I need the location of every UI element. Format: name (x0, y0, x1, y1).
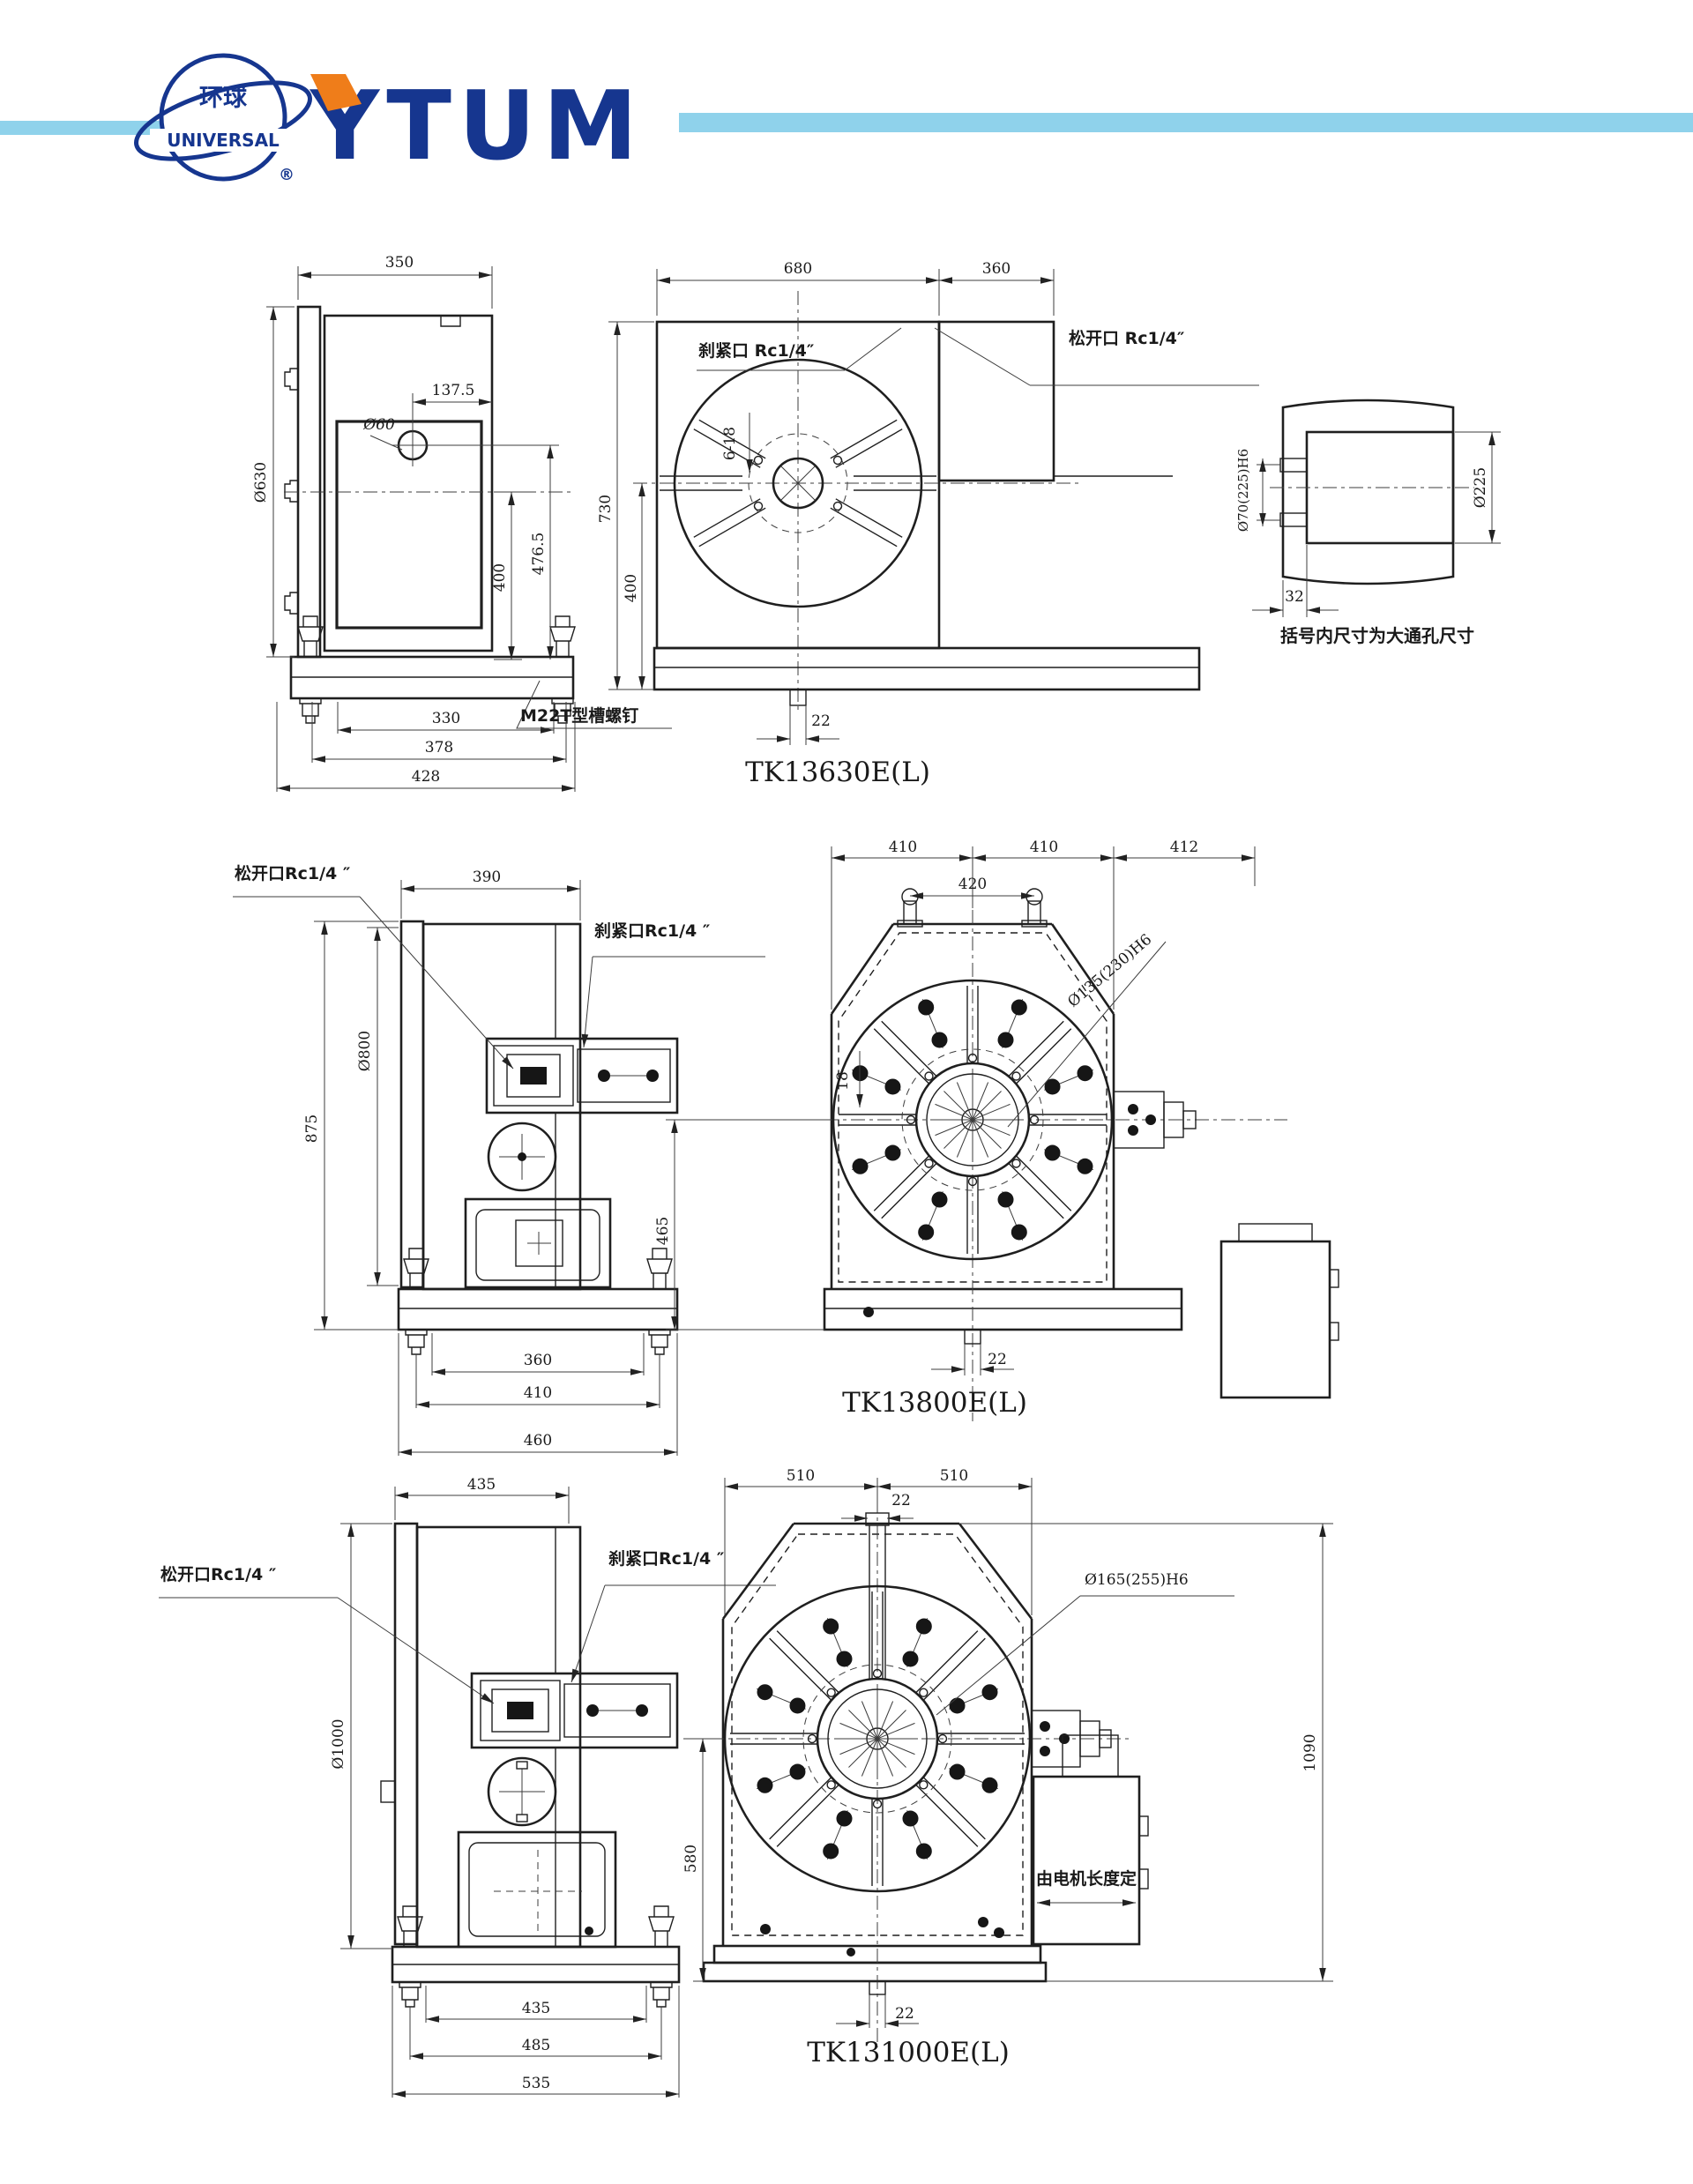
tk13630-title: TK13630E(L) (745, 757, 930, 788)
dim-510-a: 510 (787, 1467, 815, 1485)
tk131000-side-view (381, 1524, 679, 2007)
page-header: 环球 UNIVERSAL ® YTUM (0, 56, 1693, 184)
drawing-tk13630: 350 Ø630 137.5 Ø60 400 476.5 330 378 428 (252, 254, 1501, 792)
logo-chinese-name: 环球 (199, 85, 248, 112)
dim-330: 330 (432, 710, 460, 727)
dim-360: 360 (982, 260, 1011, 278)
tk131000-front-view (683, 1499, 1148, 2047)
tk13800-front-view (666, 889, 1339, 1421)
dim-390: 390 (473, 868, 501, 886)
note-bracket-dims: 括号内尺寸为大通孔尺寸 (1280, 625, 1474, 646)
tk13630-shaft-detail: Ø70(225)H6 Ø225 32 括号内尺寸为大通孔尺寸 (1235, 400, 1501, 646)
dim-485: 485 (522, 2037, 550, 2054)
tk13630-front-dimensions: 680 360 730 400 刹紧口 Rc1/4″ 松开口 Rc1/4″ 6-… (597, 260, 1259, 745)
dim-428: 428 (412, 768, 440, 786)
dim-137-5: 137.5 (432, 382, 475, 399)
tk13800-side-view (399, 921, 677, 1354)
logo-english-name: UNIVERSAL (167, 130, 280, 151)
dim-bore-135-230: Ø135(230)H6 (1064, 931, 1155, 1011)
brand-text: YTUM (309, 71, 645, 182)
dim-410-b: 410 (1030, 839, 1058, 856)
tk13800-side-dimensions: 390 松开口Rc1/4 ″ 刹紧口Rc1/4 ″ 875 Ø800 360 4… (233, 863, 765, 1456)
dim-225: Ø225 (1472, 467, 1489, 508)
dim-680: 680 (784, 260, 812, 278)
dim-350: 350 (385, 254, 414, 272)
universal-globe-logo: 环球 UNIVERSAL ® (129, 56, 318, 184)
dim-1090: 1090 (1301, 1733, 1319, 1771)
tk131000-side-dimensions: 435 松开口Rc1/4 ″ 刹紧口Rc1/4 ″ Ø1000 435 485 … (159, 1476, 776, 2098)
logo-registered-mark: ® (279, 166, 295, 184)
dim-32: 32 (1285, 588, 1304, 606)
dim-key-22-top: 22 (891, 1492, 911, 1509)
dim-key-22-3: 22 (895, 2005, 914, 2023)
dim-6-18: 6-18 (721, 427, 739, 460)
label-clamp-port-2: 刹紧口Rc1/4 ″ (594, 921, 711, 941)
dim-435-bottom: 435 (522, 2000, 550, 2017)
dim-410-a: 410 (889, 839, 917, 856)
dim-dia800: Ø800 (356, 1031, 374, 1071)
drawing-tk131000: 435 松开口Rc1/4 ″ 刹紧口Rc1/4 ″ Ø1000 435 485 … (159, 1467, 1333, 2098)
dim-730: 730 (597, 495, 615, 523)
dim-dia630: Ø630 (252, 462, 270, 503)
tk131000-worm-shaft-stub (1032, 1711, 1111, 1767)
dim-key-22-2: 22 (988, 1351, 1007, 1368)
callout-tslot-screw: M22T型槽螺钉 (520, 705, 638, 726)
tk131000-front-dimensions: 510 510 22 Ø165(255)H6 580 1090 由电机长度定 2… (682, 1467, 1333, 2028)
dim-465: 465 (654, 1217, 672, 1245)
label-clamp-port-3: 刹紧口Rc1/4 ″ (608, 1549, 725, 1569)
dim-535: 535 (522, 2075, 550, 2092)
dim-360-2: 360 (524, 1352, 552, 1369)
header-bar-right (679, 113, 1693, 132)
dim-420: 420 (958, 876, 987, 893)
dim-400-side: 400 (491, 563, 509, 592)
dim-875: 875 (303, 1114, 321, 1143)
label-release-port-3: 松开口Rc1/4 ″ (160, 1564, 277, 1584)
tk13800-front-dimensions: 410 410 412 420 Ø135(230)H6 18 465 22 (654, 839, 1255, 1375)
dim-435-top: 435 (467, 1476, 496, 1494)
tk13630-side-view (284, 307, 575, 723)
tk13800-title: TK13800E(L) (842, 1387, 1027, 1419)
dim-378: 378 (425, 739, 453, 757)
catalog-page: 环球 UNIVERSAL ® YTUM (0, 0, 1693, 2184)
tk13800-motor-box (1221, 1224, 1339, 1398)
label-release-port-1: 松开口 Rc1/4″ (1069, 328, 1185, 348)
dim-400-front: 400 (623, 574, 640, 602)
dim-476-5: 476.5 (530, 533, 548, 576)
dim-460: 460 (524, 1432, 552, 1450)
dim-hole-60: Ø60 (362, 416, 395, 434)
dim-key-22-1: 22 (811, 712, 831, 730)
dim-bore-70-225: Ø70(225)H6 (1235, 449, 1251, 532)
label-clamp-port-1: 刹紧口 Rc1/4″ (698, 341, 815, 361)
dim-bore-165-255: Ø165(255)H6 (1085, 1571, 1189, 1589)
dim-412: 412 (1170, 839, 1198, 856)
label-release-port-2: 松开口Rc1/4 ″ (235, 863, 351, 883)
dim-18: 18 (834, 1071, 852, 1091)
dim-580: 580 (682, 1845, 700, 1873)
dim-510-b: 510 (940, 1467, 968, 1485)
tk131000-title: TK131000E(L) (807, 2037, 1010, 2068)
drawing-tk13800: 390 松开口Rc1/4 ″ 刹紧口Rc1/4 ″ 875 Ø800 360 4… (233, 839, 1339, 1456)
label-motor-length: 由电机长度定 (1036, 1868, 1137, 1889)
brand-wordmark: YTUM (309, 71, 645, 182)
dim-410-2: 410 (524, 1384, 552, 1402)
dim-dia1000: Ø1000 (330, 1718, 347, 1769)
